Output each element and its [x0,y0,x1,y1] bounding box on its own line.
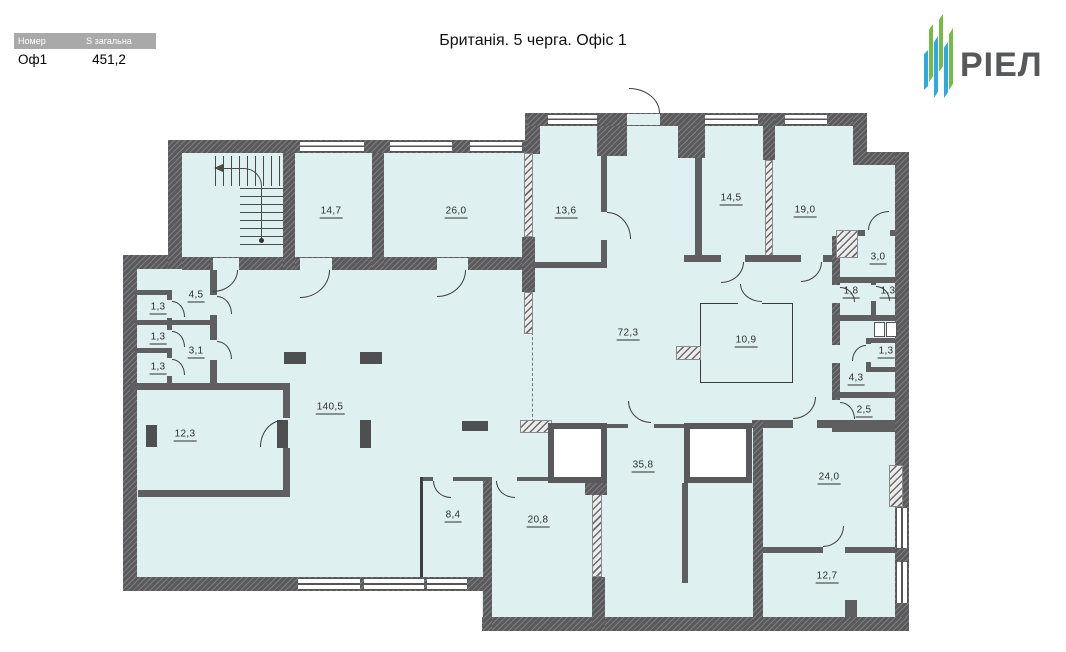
wall [765,160,773,262]
door-gap [437,258,468,270]
wall [533,262,607,268]
room-area-label: 3,0 [870,252,887,265]
wall [682,483,688,583]
table-value-row: Оф1 451,2 [14,49,156,70]
room-area-label: 1,3 [150,302,167,315]
door-arc [629,88,660,113]
room-area-label: 72,3 [617,328,640,341]
room-area-label: 140,5 [316,402,345,415]
room-area-label: 24,0 [818,472,841,485]
floor-area [527,113,853,631]
room-area-label: 4,3 [848,373,865,386]
wall [678,126,705,158]
window [390,141,452,152]
door-gap [300,258,332,270]
wall [420,477,423,577]
wall [283,153,295,270]
room-area-label: 10,9 [735,335,758,348]
room-area-label: 12,3 [174,429,197,442]
wall [483,477,492,631]
room-area-label: 12,7 [816,571,839,584]
wall [866,367,895,372]
dashed-zone-boundary [532,332,533,422]
window [548,114,597,125]
door-gap [801,255,823,262]
room-area-label: 4,5 [188,290,205,303]
logo-bar-icon [939,14,943,72]
wall-stub [845,600,857,617]
room-area-label: 14,7 [320,206,343,219]
page-title: Британія. 5 черга. Офіс 1 [439,32,627,50]
wall [168,140,182,269]
window [470,141,522,152]
door-gap [627,114,660,125]
wall [601,240,607,264]
room-area-label: 1,3 [150,332,167,345]
wall [832,392,895,398]
wall [482,617,909,631]
wall [123,255,137,591]
room-area-label: 19,0 [794,205,817,218]
wall [167,325,172,330]
window [785,114,827,125]
wall [138,490,290,497]
floor-plan-canvas: Номер S загальна Оф1 451,2 Британія. 5 ч… [0,0,1066,652]
window [427,578,467,590]
room-area-label: 1,3 [878,346,895,359]
window [896,508,908,548]
stairs-walk-line [222,168,262,240]
logo-bar-icon [944,42,948,98]
logo-wordmark: РІЕЛ [960,48,1043,82]
column [360,420,371,448]
column [462,421,488,431]
wall-stub [676,346,701,360]
logo-bar-icon [929,24,933,82]
logo-bar-icon [924,50,928,90]
wall [832,303,840,345]
wall [167,376,172,383]
column [284,352,306,364]
vent-shaft [886,322,897,337]
shaft-box [836,230,858,258]
wall [695,158,702,262]
logo-bar-icon [934,36,938,98]
unit-number-value: Оф1 [14,49,62,70]
column [146,425,157,447]
wall [832,315,895,321]
window [705,114,758,125]
wall [524,153,533,237]
door-gap [628,424,654,428]
riel-logo: РІЕЛ [918,12,1064,98]
room-area-label: 1,3 [880,286,897,299]
room-area-label: 13,6 [555,206,578,219]
door-gap [213,258,239,270]
wall [832,277,895,283]
wall [210,315,217,340]
wall [597,126,627,156]
door-gap [865,230,890,236]
wall [763,113,775,160]
col-area-header: S загальна [62,33,156,49]
room-area-label: 2,5 [856,405,873,418]
room-area-label: 35,8 [632,460,655,473]
unit-info-table: Номер S загальна Оф1 451,2 [14,33,156,70]
stairs-walk-dot [259,238,264,243]
wall-niche [889,465,903,507]
wall [895,152,909,631]
room-area-label: 26,0 [445,206,468,219]
wall [135,320,217,325]
door-gap [866,344,871,362]
window [896,562,908,603]
wall [592,577,605,631]
elevator-shaft [684,423,752,483]
room-area-label: 1,8 [843,286,860,299]
room-area-label: 14,5 [720,193,743,206]
wall [752,420,895,428]
wall [167,290,172,300]
window [300,141,364,152]
window [364,578,424,590]
col-number-header: Номер [14,33,62,49]
logo-bar-icon [949,28,953,90]
table-header-row: Номер S загальна [14,33,156,49]
wall [167,348,172,358]
door-gap [823,547,845,553]
room-area-label: 1,3 [150,362,167,375]
stairs-arrow-icon [214,164,223,172]
room-area-label: 20,8 [527,515,550,528]
window [298,578,360,590]
wall [524,292,533,334]
wall [372,153,384,270]
door-gap [793,420,817,428]
room-area-label: 8,4 [445,510,462,523]
room-area-label: 3,1 [188,346,205,359]
vent-shaft [874,322,885,337]
door-gap [721,255,745,262]
elevator-shaft [548,423,607,483]
wall [753,420,763,631]
wall [592,481,602,577]
column [360,352,382,364]
total-area-value: 451,2 [62,49,156,70]
wall [210,360,217,387]
